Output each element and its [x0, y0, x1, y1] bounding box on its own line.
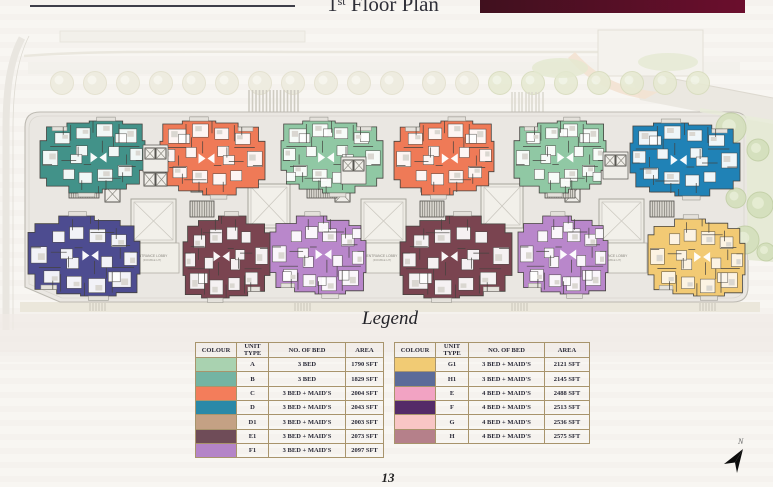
svg-text:(DOUBLE HT): (DOUBLE HT)	[373, 258, 392, 262]
svg-text:N: N	[737, 437, 744, 446]
svg-text:(DOUBLE HT): (DOUBLE HT)	[143, 258, 162, 262]
